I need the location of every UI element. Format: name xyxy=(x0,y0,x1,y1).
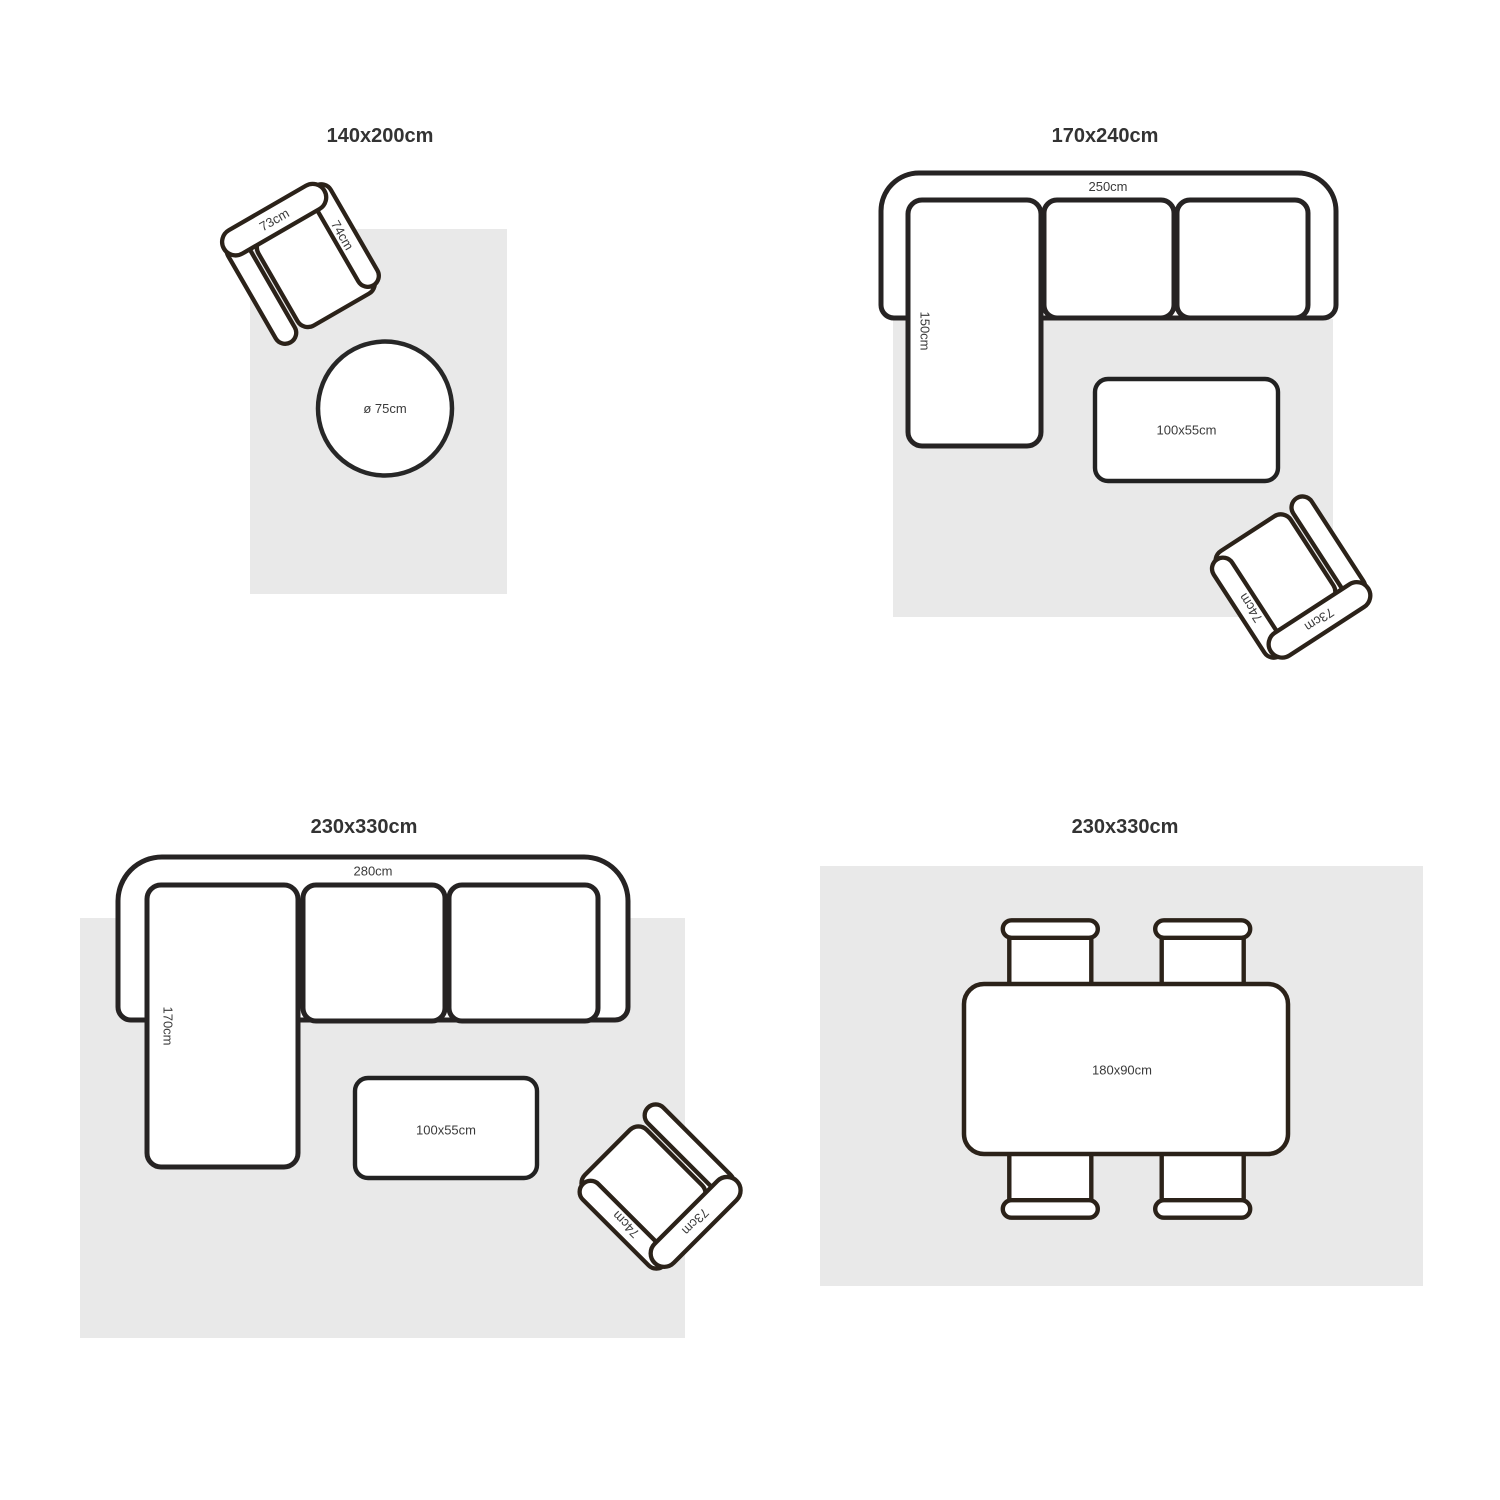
svg-text:230x330cm: 230x330cm xyxy=(311,816,418,838)
svg-text:100x55cm: 100x55cm xyxy=(1157,423,1217,438)
svg-text:100x55cm: 100x55cm xyxy=(416,1123,476,1138)
svg-text:ø 75cm: ø 75cm xyxy=(363,401,406,416)
svg-text:170x240cm: 170x240cm xyxy=(1052,125,1159,147)
svg-text:150cm: 150cm xyxy=(917,311,932,350)
svg-text:180x90cm: 180x90cm xyxy=(1092,1063,1152,1078)
svg-text:170cm: 170cm xyxy=(160,1006,175,1045)
svg-text:250cm: 250cm xyxy=(1088,179,1127,194)
svg-text:140x200cm: 140x200cm xyxy=(327,125,434,147)
svg-text:280cm: 280cm xyxy=(353,864,392,879)
svg-text:230x330cm: 230x330cm xyxy=(1072,816,1179,838)
